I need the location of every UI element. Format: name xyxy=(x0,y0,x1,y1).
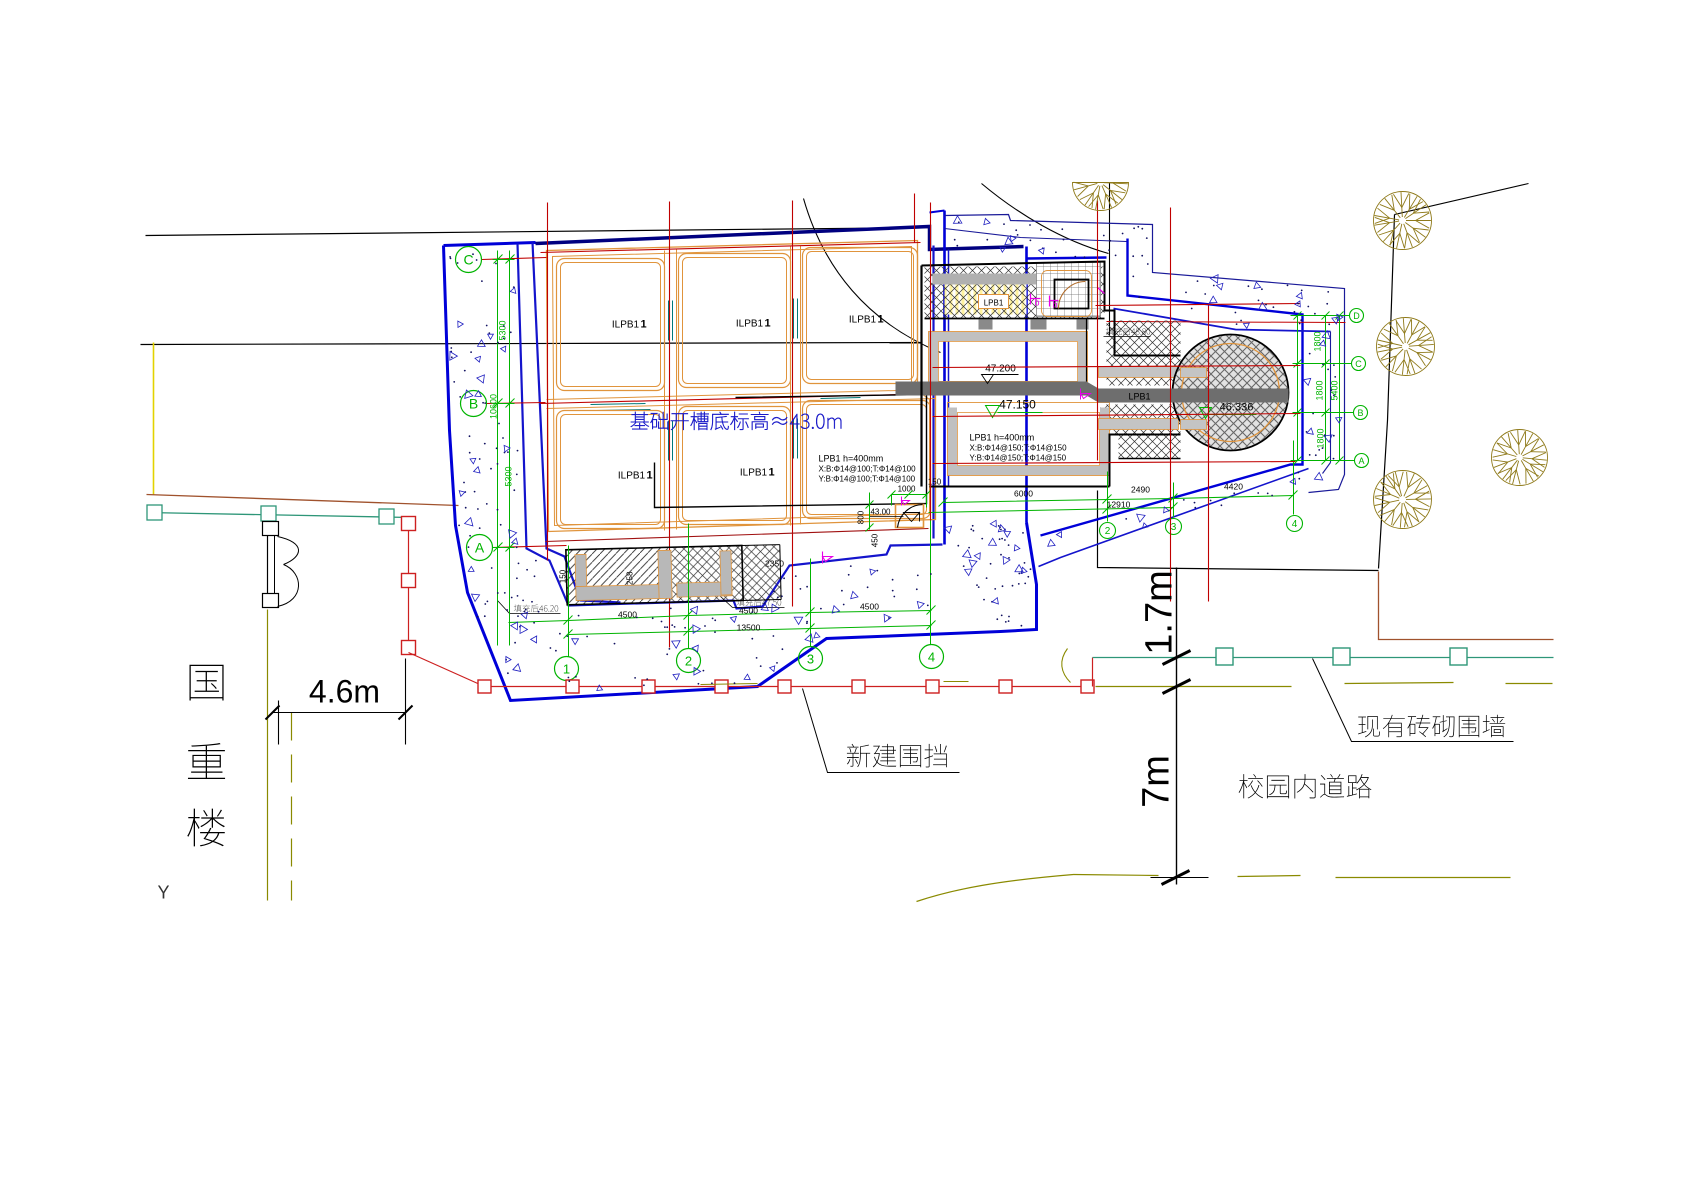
svg-text:46.336: 46.336 xyxy=(1220,402,1254,414)
svg-text:7m: 7m xyxy=(1136,755,1178,808)
svg-text:800: 800 xyxy=(857,510,866,524)
svg-text:2: 2 xyxy=(1105,526,1111,537)
svg-text:Y:B:Φ14@150;T:Φ14@150: Y:B:Φ14@150;T:Φ14@150 xyxy=(970,454,1067,463)
svg-text:C: C xyxy=(1355,359,1362,369)
svg-text:4500: 4500 xyxy=(739,606,758,616)
svg-text:Y: Y xyxy=(157,883,169,903)
svg-text:1: 1 xyxy=(877,314,883,326)
svg-text:4500: 4500 xyxy=(860,602,879,612)
svg-text:Y:B:Φ14@100;T:Φ14@100: Y:B:Φ14@100;T:Φ14@100 xyxy=(819,475,916,484)
svg-text:1000: 1000 xyxy=(898,485,916,494)
svg-text:ILPB1: ILPB1 xyxy=(618,471,646,482)
svg-text:LPB1: LPB1 xyxy=(984,299,1004,308)
svg-text:LPB1 h=400mm: LPB1 h=400mm xyxy=(970,433,1035,443)
svg-text:LPB1 h=400mm: LPB1 h=400mm xyxy=(819,454,884,464)
svg-text:2: 2 xyxy=(685,654,692,669)
svg-text:4.6m: 4.6m xyxy=(309,674,380,710)
svg-text:3: 3 xyxy=(1171,522,1177,533)
svg-text:ILPB1: ILPB1 xyxy=(740,468,768,479)
svg-text:ILPB1: ILPB1 xyxy=(612,320,640,331)
svg-text:12910: 12910 xyxy=(1107,500,1131,510)
svg-text:3: 3 xyxy=(807,652,814,667)
svg-text:1: 1 xyxy=(768,467,774,479)
svg-text:b: b xyxy=(1035,298,1040,308)
svg-text:D: D xyxy=(1353,311,1360,321)
svg-text:b: b xyxy=(1053,300,1058,310)
svg-text:4420: 4420 xyxy=(1224,482,1243,492)
svg-text:4500: 4500 xyxy=(618,610,637,620)
svg-text:ILPB1: ILPB1 xyxy=(849,315,877,326)
svg-text:C: C xyxy=(463,252,473,268)
svg-text:1800: 1800 xyxy=(1315,380,1325,400)
svg-text:47.200: 47.200 xyxy=(985,364,1016,375)
svg-text:1: 1 xyxy=(563,662,570,677)
svg-text:4: 4 xyxy=(928,650,935,665)
svg-text:43.00: 43.00 xyxy=(870,508,891,517)
svg-text:A: A xyxy=(475,540,485,556)
svg-text:2490: 2490 xyxy=(1131,485,1150,495)
svg-text:X:B:Φ14@100;T:Φ14@100: X:B:Φ14@100;T:Φ14@100 xyxy=(819,465,917,474)
svg-text:1800: 1800 xyxy=(1313,331,1323,351)
svg-text:B: B xyxy=(1357,408,1363,418)
svg-text:5300: 5300 xyxy=(498,320,508,340)
svg-text:1.7m: 1.7m xyxy=(1139,570,1181,654)
svg-text:450: 450 xyxy=(871,533,880,547)
svg-text:1: 1 xyxy=(764,318,770,330)
svg-text:1: 1 xyxy=(640,319,646,331)
svg-text:47.150: 47.150 xyxy=(999,398,1036,412)
svg-text:B: B xyxy=(469,396,478,412)
svg-text:150: 150 xyxy=(928,478,942,487)
svg-text:X:B:Φ14@150;T:Φ14@150: X:B:Φ14@150;T:Φ14@150 xyxy=(970,444,1068,453)
svg-text:LPB1: LPB1 xyxy=(1128,392,1150,402)
svg-text:1800: 1800 xyxy=(1316,428,1326,448)
svg-text:13500: 13500 xyxy=(737,623,761,633)
svg-text:1: 1 xyxy=(646,470,652,482)
svg-text:6000: 6000 xyxy=(1014,489,1033,499)
svg-text:ILPB1: ILPB1 xyxy=(736,319,764,330)
svg-text:4: 4 xyxy=(1292,519,1298,530)
svg-text:A: A xyxy=(1358,456,1364,466)
svg-text:10600: 10600 xyxy=(489,394,499,419)
svg-text:5300: 5300 xyxy=(504,466,514,486)
